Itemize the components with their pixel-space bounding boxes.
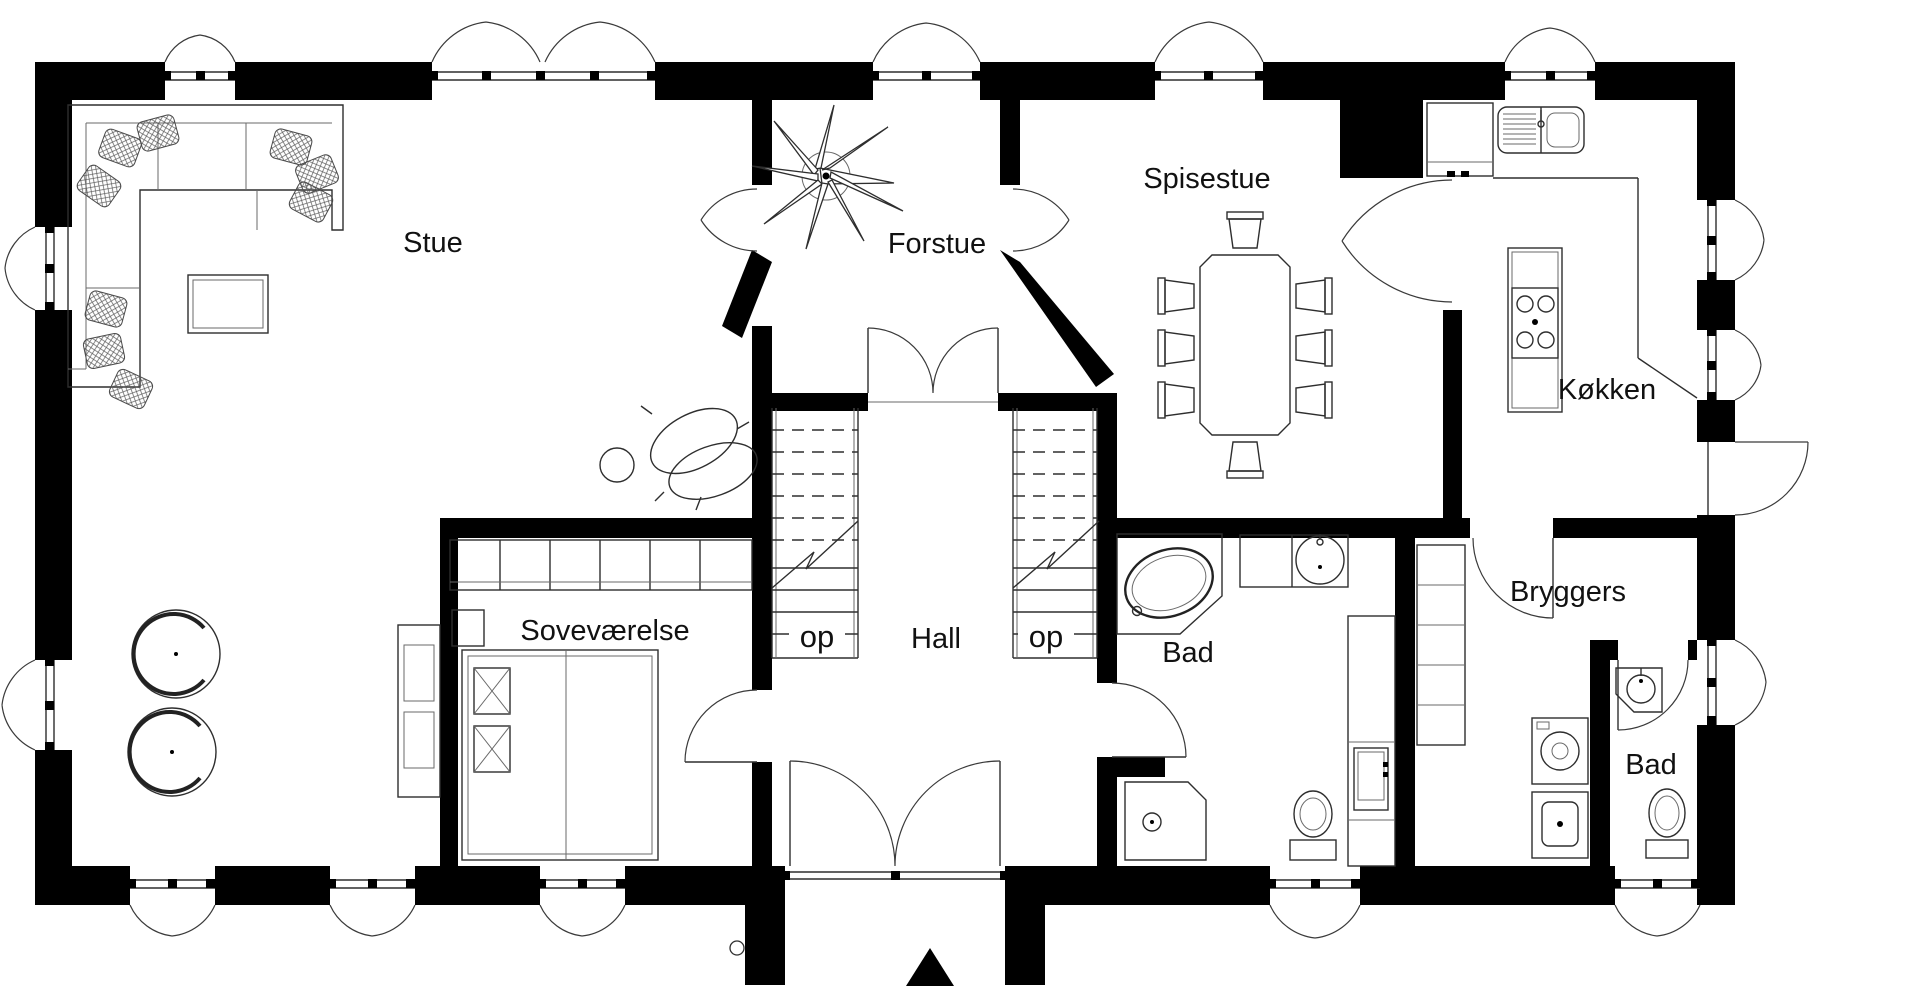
entrance-arrow-icon — [906, 948, 954, 986]
room-label-sovevaerelse: Soveværelse — [520, 615, 689, 647]
room-label-bad-center: Bad — [1162, 637, 1214, 669]
plant-icon — [752, 105, 903, 249]
stairs-right: op — [1013, 408, 1099, 658]
side-table-set — [600, 395, 765, 510]
vanity-sink — [1240, 534, 1348, 587]
room-labels: Stue Forstue Spisestue Køkken Soveværels… — [403, 163, 1677, 781]
room-label-kokken: Køkken — [1558, 374, 1656, 406]
dining-table — [1200, 255, 1290, 435]
shower — [1125, 782, 1206, 860]
room-label-bad-right: Bad — [1625, 749, 1677, 781]
room-label-stue: Stue — [403, 227, 463, 259]
washing-machine — [1532, 718, 1588, 784]
dining-chairs — [1158, 212, 1332, 478]
armchair — [128, 708, 216, 796]
stairs-left: op — [772, 408, 858, 658]
utility-cabinets — [1417, 545, 1465, 745]
room-label-spisestue: Spisestue — [1143, 163, 1270, 195]
corner-sink — [1616, 668, 1662, 712]
bed — [462, 650, 658, 860]
kitchen-sink — [1498, 107, 1584, 153]
dresser — [398, 625, 440, 797]
stairs-up-label: op — [1029, 619, 1063, 654]
room-label-bryggers: Bryggers — [1510, 576, 1626, 608]
bathtub — [1115, 534, 1222, 634]
room-label-forstue: Forstue — [888, 228, 986, 260]
stove — [1512, 288, 1558, 358]
laundry-cabinet — [1532, 792, 1588, 858]
coffee-table — [188, 275, 268, 333]
kitchen-island — [1508, 248, 1562, 412]
sofa-pillows — [75, 114, 340, 411]
floor-plan: op op — [0, 0, 1920, 1006]
armchair — [132, 610, 220, 698]
toilet — [1290, 791, 1336, 860]
wardrobe — [450, 540, 752, 590]
fridge — [1427, 103, 1493, 177]
room-label-hall: Hall — [911, 623, 961, 655]
toilet — [1646, 789, 1688, 858]
bathroom-cabinet — [1348, 616, 1395, 866]
windows — [2, 22, 1808, 938]
stairs-up-label: op — [800, 619, 834, 654]
